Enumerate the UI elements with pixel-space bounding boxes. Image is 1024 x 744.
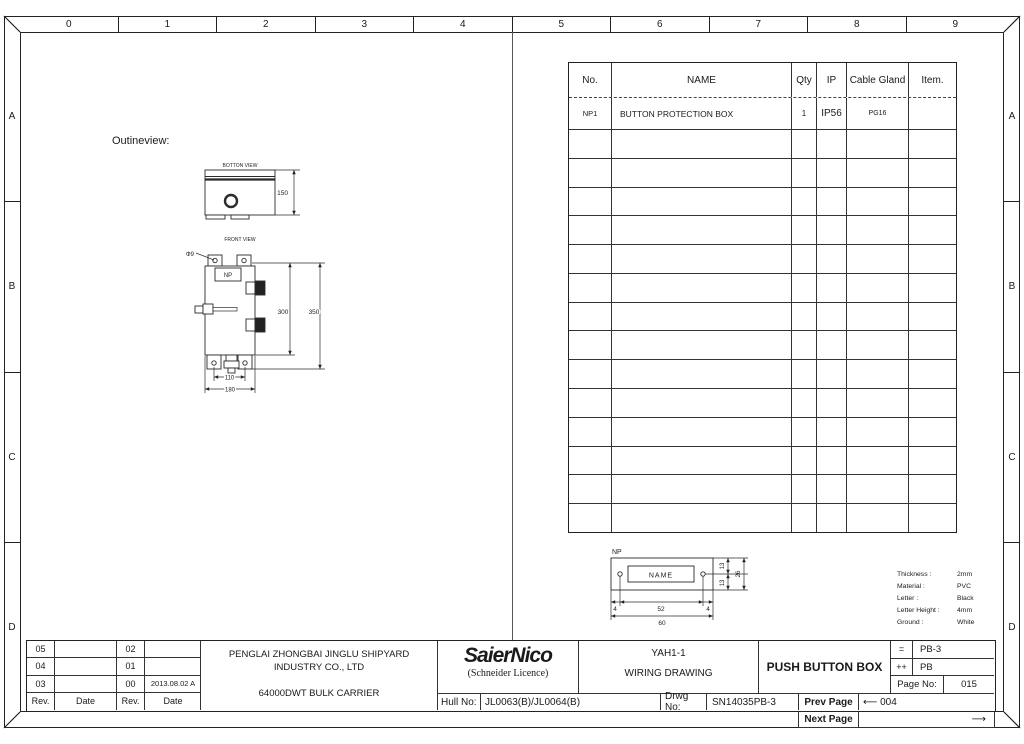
table-empty-cell [817,245,847,273]
table-empty-cell [817,504,847,532]
table-empty-row [569,130,956,159]
company-block: PENGLAI ZHONGBAI JINGLU SHIPYARD INDUSTR… [201,641,438,710]
code-row-eq: = PB-3 [891,641,994,659]
table-empty-cell [792,303,817,331]
table-empty-cell [569,504,612,532]
table-empty-cell [569,475,612,503]
nameplate-notes: Thickness :2mm Material :PVC Letter :Bla… [897,569,1001,628]
table-empty-cell [569,303,612,331]
table-empty-cell [612,447,792,475]
parts-table: No. NAME Qty IP Cable Gland Item. NP1 BU… [568,62,957,533]
col-header-cable-gland: Cable Gland [847,63,909,97]
prev-page-row: Prev Page ⟵ 004 [798,693,994,710]
table-empty-cell [817,303,847,331]
table-empty-cell [792,360,817,388]
table-empty-cell [847,245,909,273]
table-empty-cell [792,188,817,216]
page-number: 015 [944,676,994,693]
table-empty-cell [909,188,956,216]
table-empty-cell [612,331,792,359]
table-empty-row [569,447,956,476]
table-empty-cell [817,389,847,417]
dim-hole-dia: Φ9 [186,252,195,258]
table-empty-cell [612,130,792,158]
table-empty-cell [847,418,909,446]
revision-table: 05 02 04 01 03 00 2013.08.02 A Rev. Date… [27,641,201,710]
table-empty-cell [847,274,909,302]
np-marker: NP [224,273,232,279]
col-header-ip: IP [817,63,847,97]
dim-60: 60 [658,620,666,627]
drawing-type: WIRING DRAWING [579,668,758,679]
table-empty-cell [909,418,956,446]
table-empty-cell [569,418,612,446]
dim-350: 350 [309,309,320,316]
table-empty-row [569,389,956,418]
cell-no: NP1 [569,98,612,129]
table-empty-cell [569,360,612,388]
table-empty-cell [909,159,956,187]
cell-item [909,98,956,129]
grid-label: C [4,373,20,543]
grid-label: B [1004,202,1020,372]
table-empty-cell [569,216,612,244]
table-empty-cell [847,188,909,216]
hull-no-value: JL0063(B)/JL0064(B) [481,694,661,710]
table-empty-cell [847,475,909,503]
hull-drwg-row: Hull No: JL0063(B)/JL0064(B) Drwg No: SN… [438,693,798,710]
grid-label: 1 [119,16,218,32]
dim-150: 150 [277,190,288,197]
outline-views-drawing: BOTTON VIEW 150 FRONT VIEW Φ9 NP 110 180… [95,130,345,405]
bottom-view-label: BOTTON VIEW [223,163,258,169]
table-empty-cell [792,475,817,503]
grid-ruler-right: ABCD [1004,32,1020,712]
table-empty-row [569,274,956,303]
table-empty-row [569,216,956,245]
grid-label: 4 [414,16,513,32]
grid-label: A [1004,32,1020,202]
table-empty-row [569,360,956,389]
table-empty-cell [612,360,792,388]
grid-label: 7 [710,16,809,32]
table-empty-cell [817,475,847,503]
table-empty-cell [909,360,956,388]
table-empty-row [569,303,956,332]
cell-name: BUTTON PROTECTION BOX [612,98,792,129]
table-empty-cell [909,274,956,302]
dim-26: 26 [736,570,742,577]
table-empty-cell [817,418,847,446]
grid-ruler-left: ABCD [4,32,20,712]
table-empty-row [569,159,956,188]
grid-label: 3 [316,16,415,32]
table-empty-cell [612,418,792,446]
drawing-title-block: YAH1-1 WIRING DRAWING [579,641,759,693]
grid-label: 0 [20,16,119,32]
table-empty-cell [612,188,792,216]
dim-13-lower: 13 [720,579,726,586]
table-empty-cell [612,245,792,273]
table-empty-cell [792,418,817,446]
table-empty-row [569,418,956,447]
nameplate-label: NP [612,549,622,556]
table-empty-cell [847,216,909,244]
table-empty-cell [909,504,956,532]
nameplate-text: NAME [649,573,673,580]
table-empty-cell [817,130,847,158]
dim-4-left: 4 [613,606,617,613]
table-empty-cell [792,274,817,302]
dim-180: 180 [225,388,236,394]
logo-block: SaierNico (Schneider Licence) [438,641,579,693]
grid-label: 2 [217,16,316,32]
table-empty-cell [612,159,792,187]
col-header-no: No. [569,63,612,97]
sheet-fold-line [512,32,513,640]
table-empty-cell [612,274,792,302]
dim-52: 52 [657,606,665,613]
table-empty-cell [569,188,612,216]
front-view-label: FRONT VIEW [224,237,256,243]
dim-4-right: 4 [706,606,710,613]
table-empty-cell [847,159,909,187]
grid-label: C [1004,373,1020,543]
table-empty-cell [612,389,792,417]
table-empty-cell [792,331,817,359]
dim-13-upper: 13 [720,562,726,569]
table-empty-cell [909,447,956,475]
table-empty-cell [569,159,612,187]
table-empty-row [569,331,956,360]
table-empty-cell [817,159,847,187]
table-empty-cell [792,447,817,475]
hull-no-label: Hull No: [438,694,481,710]
cell-qty: 1 [792,98,817,129]
table-empty-cell [569,245,612,273]
drwg-no-value: SN14035PB-3 [707,694,798,710]
col-header-name: NAME [612,63,792,97]
table-empty-cell [909,130,956,158]
note-thickness: Thickness :2mm [897,569,1001,581]
bottom-gland [224,355,239,373]
table-empty-cell [569,389,612,417]
next-page-arrow: ⟶ [859,712,994,727]
table-empty-cell [612,216,792,244]
grid-label: A [4,32,20,202]
table-empty-cell [792,504,817,532]
table-empty-cell [569,447,612,475]
company-name-line2: INDUSTRY CO., LTD [201,662,437,673]
drawing-sheet: 0123456789 ABCD ABCD Outineview: [0,0,1024,744]
parts-table-header-row: No. NAME Qty IP Cable Gland Item. [569,63,956,98]
drawing-code: YAH1-1 [579,648,758,659]
code-table: = PB-3 ++ PB Page No: 015 [891,641,994,693]
page-no-row: Page No: 015 [891,676,994,693]
note-material: Material :PVC [897,581,1001,593]
prev-page-value: ⟵ 004 [859,694,994,710]
table-empty-row [569,245,956,274]
table-empty-cell [792,245,817,273]
table-row-np1: NP1 BUTTON PROTECTION BOX 1 IP56 PG16 [569,98,956,130]
item-title: PUSH BUTTON BOX [759,641,891,693]
col-header-item: Item. [909,63,956,97]
title-block: 05 02 04 01 03 00 2013.08.02 A Rev. Date… [26,640,996,712]
table-empty-cell [909,331,956,359]
table-empty-cell [847,389,909,417]
note-letter: Letter :Black [897,593,1001,605]
grid-label: 9 [907,16,1005,32]
drwg-no-label: Drwg No: [661,694,707,710]
grid-label: 6 [611,16,710,32]
table-empty-cell [792,216,817,244]
grid-ruler-top: 0123456789 [20,16,1004,32]
table-empty-cell [847,360,909,388]
table-empty-cell [847,130,909,158]
table-empty-cell [847,447,909,475]
table-empty-cell [847,303,909,331]
code-row-pp: ++ PB [891,659,994,677]
grid-label: D [4,543,20,712]
table-empty-cell [569,130,612,158]
grid-label: 5 [513,16,612,32]
grid-label: 8 [808,16,907,32]
table-empty-cell [909,303,956,331]
table-empty-cell [847,504,909,532]
logo-subtitle: (Schneider Licence) [438,668,578,679]
dim-110: 110 [225,376,235,382]
grid-label: D [1004,543,1020,712]
next-page-row: Next Page ⟶ [798,712,995,728]
table-empty-cell [792,389,817,417]
table-empty-rows [569,130,956,532]
nameplate-detail-drawing: NP NAME 13 13 26 4 52 4 60 [600,545,770,635]
table-empty-cell [909,245,956,273]
cell-cable-gland: PG16 [847,98,909,129]
company-name-line1: PENGLAI ZHONGBAI JINGLU SHIPYARD [201,649,437,660]
grid-label: B [4,202,20,372]
table-empty-cell [847,331,909,359]
table-empty-cell [612,504,792,532]
table-empty-cell [612,303,792,331]
dim-300: 300 [278,309,289,316]
table-empty-row [569,504,956,532]
table-empty-cell [817,188,847,216]
note-letter-height: Letter Height :4mm [897,604,1001,616]
table-empty-cell [909,389,956,417]
note-ground: Ground :White [897,616,1001,628]
table-empty-cell [817,447,847,475]
table-empty-cell [817,274,847,302]
col-header-qty: Qty [792,63,817,97]
table-empty-cell [817,216,847,244]
table-empty-cell [817,360,847,388]
table-empty-row [569,188,956,217]
table-empty-cell [569,331,612,359]
table-empty-cell [817,331,847,359]
table-empty-cell [792,130,817,158]
front-view [195,253,325,393]
cell-ip: IP56 [817,98,847,129]
table-empty-cell [569,274,612,302]
logo-text: SaierNico [438,644,578,668]
table-empty-cell [612,475,792,503]
project-name: 64000DWT BULK CARRIER [201,688,437,699]
table-empty-cell [909,475,956,503]
table-empty-row [569,475,956,504]
table-empty-cell [792,159,817,187]
table-empty-cell [909,216,956,244]
